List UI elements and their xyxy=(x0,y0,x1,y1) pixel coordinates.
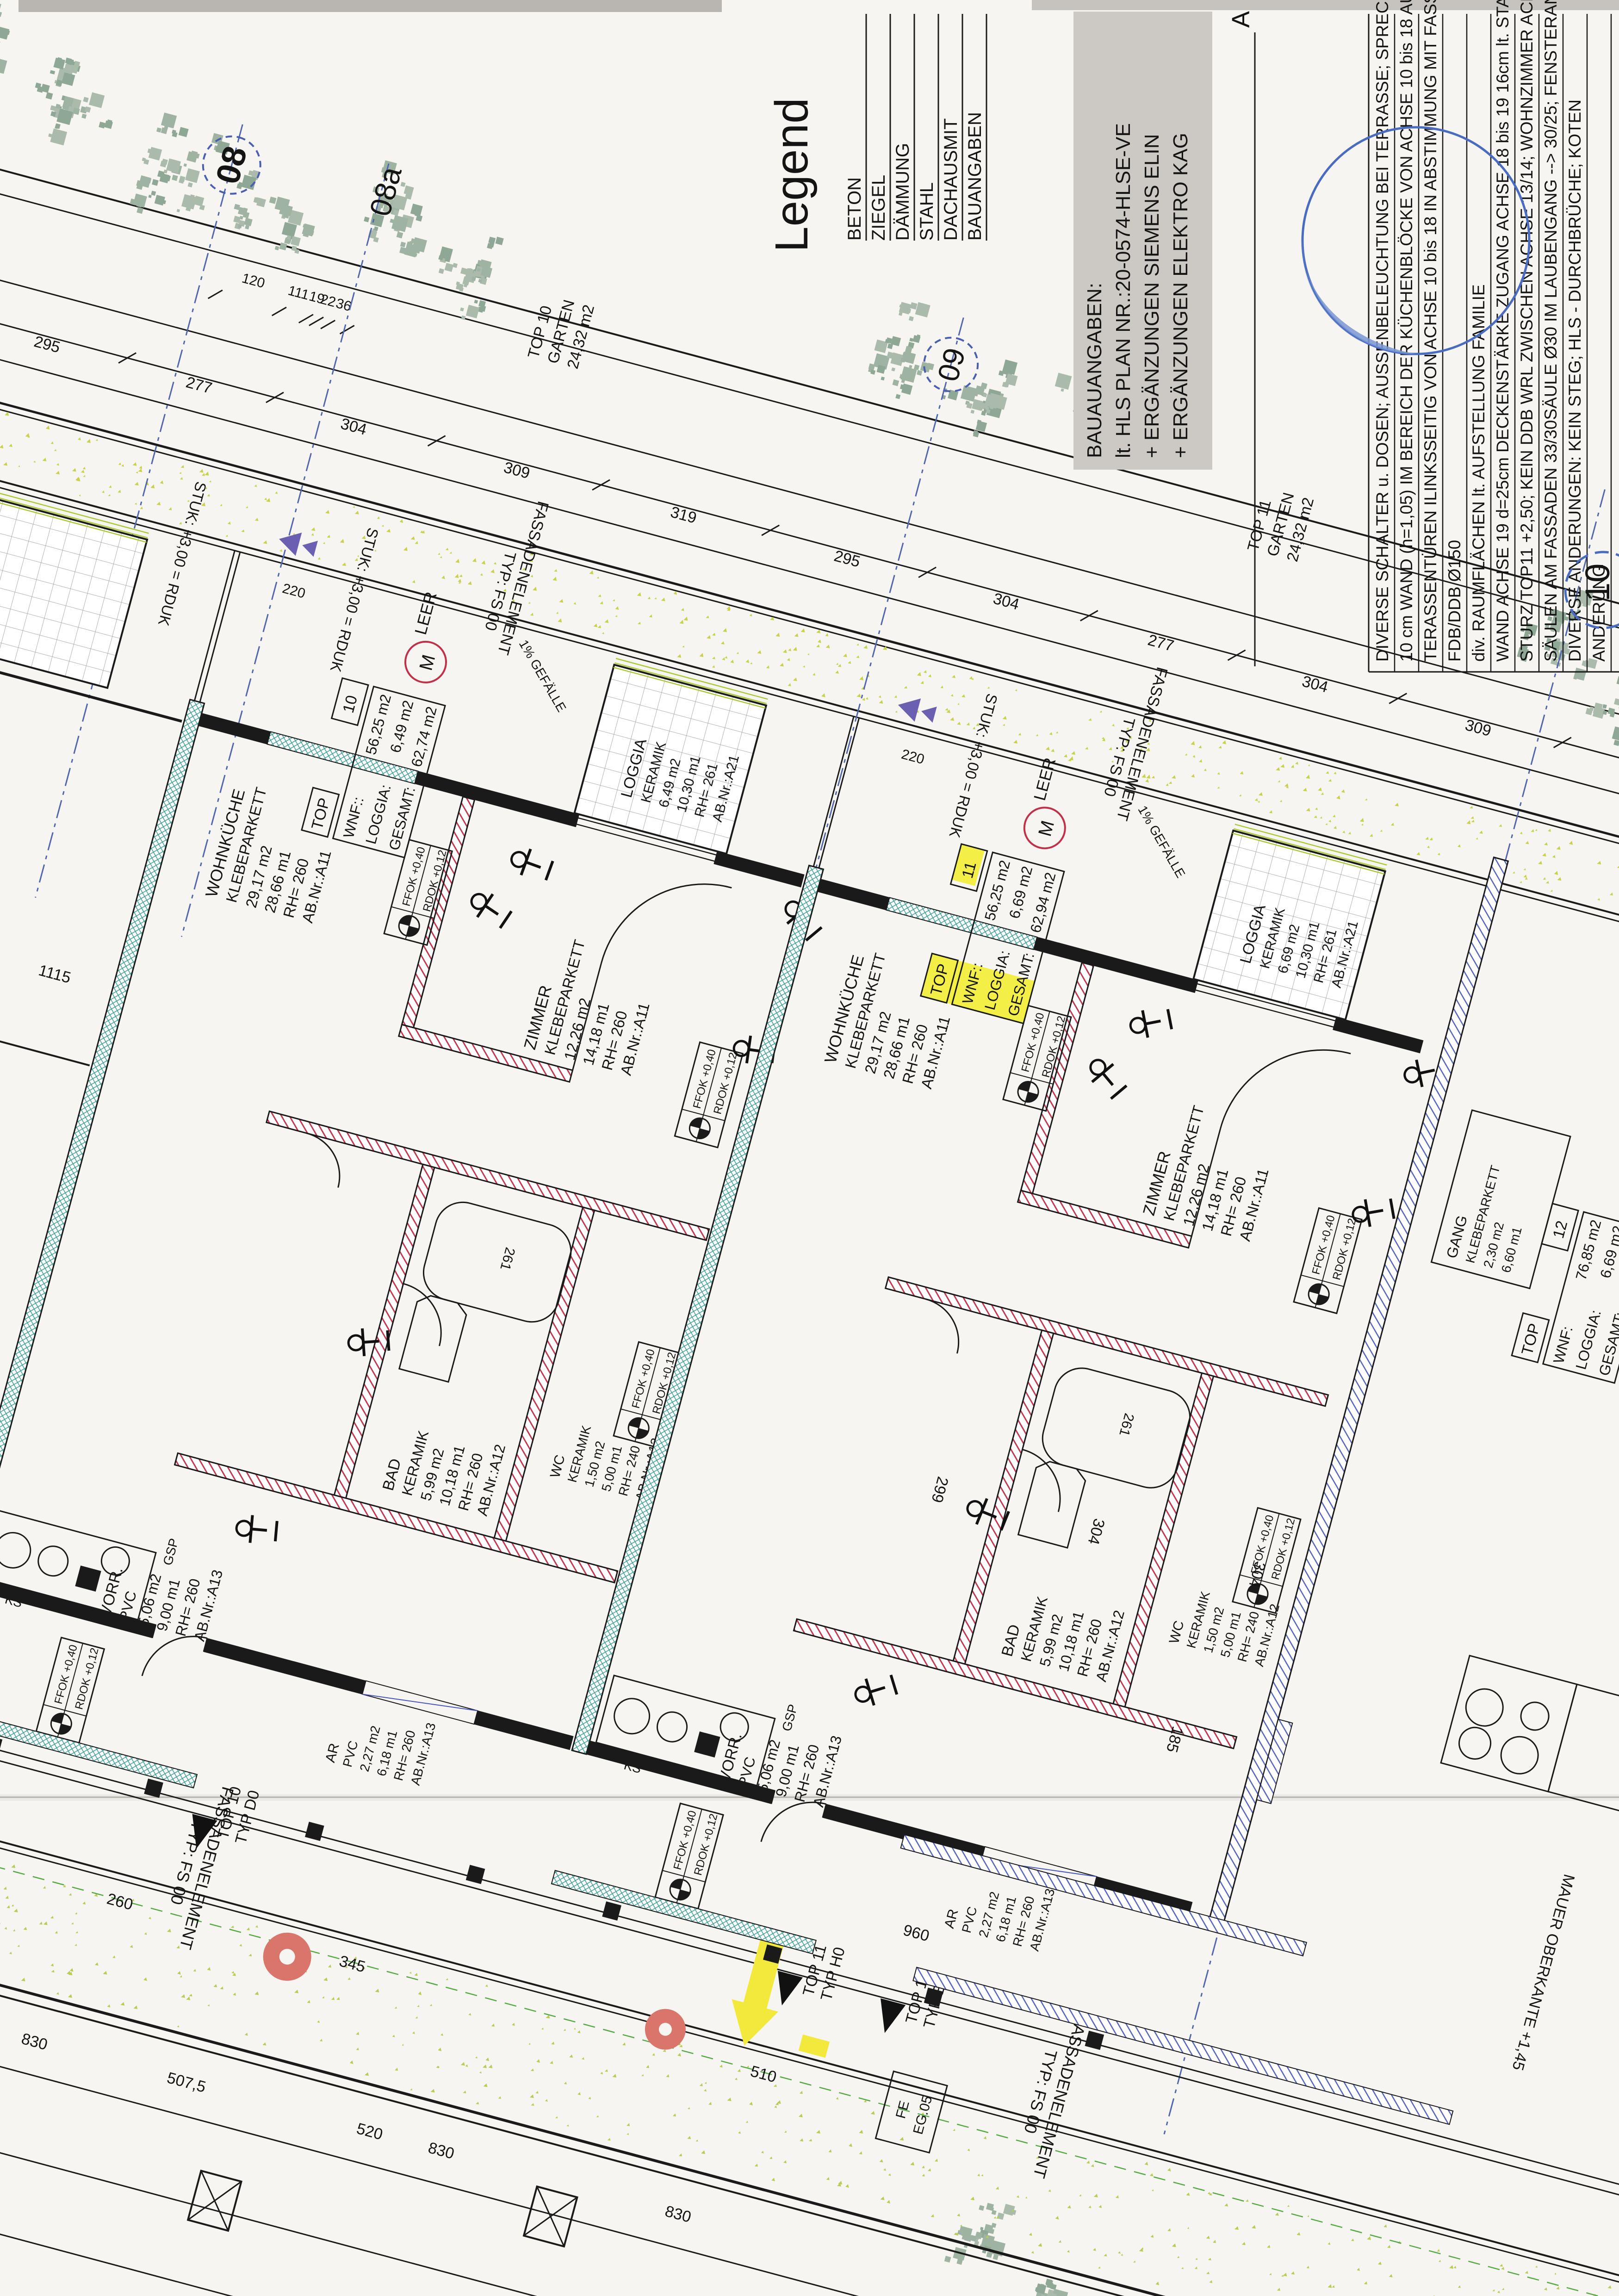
svg-text:STAHL: STAHL xyxy=(917,182,937,241)
svg-text:SÄULEN AM FASSADEN 33/30SÄULE: SÄULEN AM FASSADEN 33/30SÄULE Ø30 IM LAU… xyxy=(1541,0,1560,662)
svg-text:Legend: Legend xyxy=(766,98,818,252)
svg-text:div. RAUMFLÄCHEN lt. AUFSTELLU: div. RAUMFLÄCHEN lt. AUFSTELLUNG FAMILIE xyxy=(1469,284,1488,662)
svg-text:10 cm WAND (h=1,05) IM BEREICH: 10 cm WAND (h=1,05) IM BEREICH DER KÜCHE… xyxy=(1397,0,1416,662)
svg-text:10: 10 xyxy=(1578,564,1617,602)
svg-text:+ ERGÄNZUNGEN SIEMENS ELIN: + ERGÄNZUNGEN SIEMENS ELIN xyxy=(1141,134,1163,458)
svg-text:BETON: BETON xyxy=(844,177,865,241)
svg-text:FDB/DDB Ø150: FDB/DDB Ø150 xyxy=(1445,540,1464,662)
svg-text:BAUANGABEN: BAUANGABEN xyxy=(965,112,985,241)
svg-text:ZIEGEL: ZIEGEL xyxy=(868,175,889,241)
svg-text:STURZ TOP11 +2,50; KEIN DDB WR: STURZ TOP11 +2,50; KEIN DDB WRL ZWISCHEN… xyxy=(1517,0,1536,662)
svg-text:WAND ACHSE 19 d=25cm DECKENSTÄ: WAND ACHSE 19 d=25cm DECKENSTÄRKE ZUGANG… xyxy=(1493,0,1512,662)
svg-text:TERASSENTÜREN ILINKSSEITIG VON: TERASSENTÜREN ILINKSSEITIG VON ACHSE 10 … xyxy=(1421,0,1440,662)
svg-text:DÄMMUNG: DÄMMUNG xyxy=(893,143,913,241)
svg-text:+ ERGÄNZUNGEN ELEKTRO KAG: + ERGÄNZUNGEN ELEKTRO KAG xyxy=(1169,133,1192,458)
svg-text:A: A xyxy=(1227,11,1255,28)
svg-text:BAUAUANGABEN:: BAUAUANGABEN: xyxy=(1083,283,1106,458)
svg-text:lt. HLS PLAN NR.:20-0574-HLSE-: lt. HLS PLAN NR.:20-0574-HLSE-VE xyxy=(1112,123,1135,458)
svg-text:DIVERSE SCHALTER u. DOSEN; AUS: DIVERSE SCHALTER u. DOSEN; AUSSENBELEUCH… xyxy=(1373,0,1392,662)
svg-text:DACHAUSMIT: DACHAUSMIT xyxy=(941,118,961,241)
